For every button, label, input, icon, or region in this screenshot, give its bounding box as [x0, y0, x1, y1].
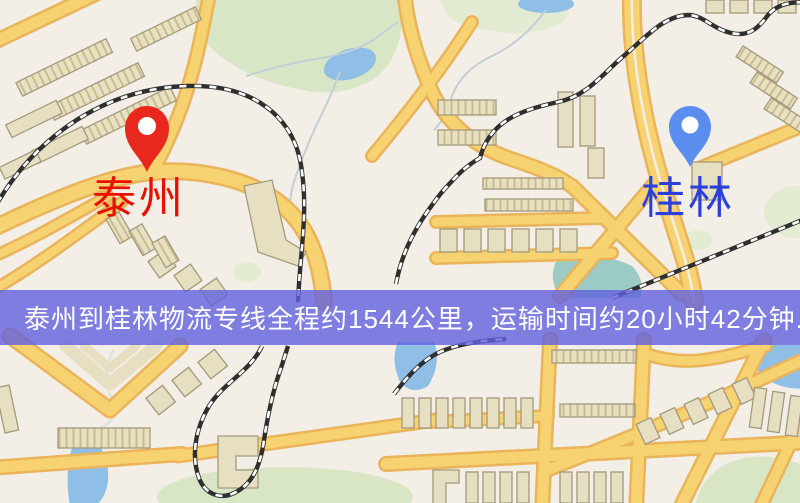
route-info-banner: 泰州到桂林物流专线全程约1544公里，运输时间约20小时42分钟. [0, 290, 800, 345]
map-pin-icon [119, 100, 175, 176]
origin-city-label: 泰州 [92, 177, 186, 221]
destination-pin [664, 101, 716, 176]
map-pin-icon [664, 101, 716, 171]
route-info-text: 泰州到桂林物流专线全程约1544公里，运输时间约20小时42分钟. [0, 299, 800, 336]
origin-pin [119, 100, 175, 181]
map-canvas: 泰州 桂林 泰州到桂林物流专线全程约1544公里，运输时间约20小时42分钟. [0, 0, 800, 503]
map-image [0, 0, 800, 503]
destination-city-label: 桂林 [641, 177, 735, 221]
